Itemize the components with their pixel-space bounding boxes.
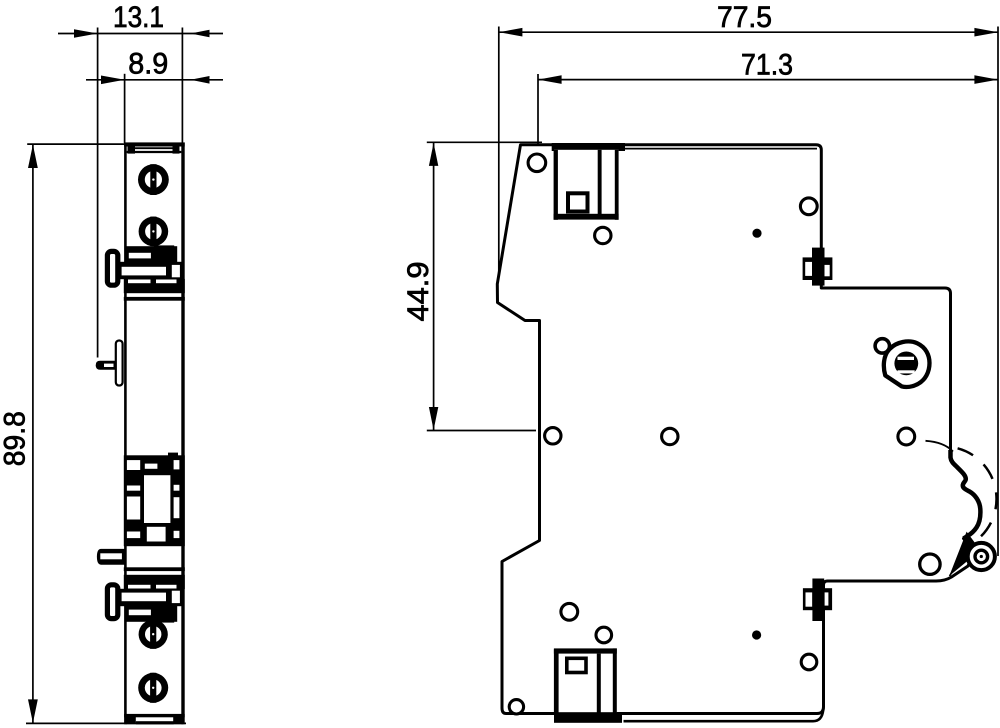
svg-text:89.8: 89.8 bbox=[0, 411, 32, 466]
svg-text:8.9: 8.9 bbox=[128, 48, 168, 81]
svg-text:13.1: 13.1 bbox=[113, 1, 164, 34]
svg-text:44.9: 44.9 bbox=[402, 262, 435, 322]
svg-text:71.3: 71.3 bbox=[741, 49, 793, 82]
svg-text:77.5: 77.5 bbox=[717, 1, 772, 34]
